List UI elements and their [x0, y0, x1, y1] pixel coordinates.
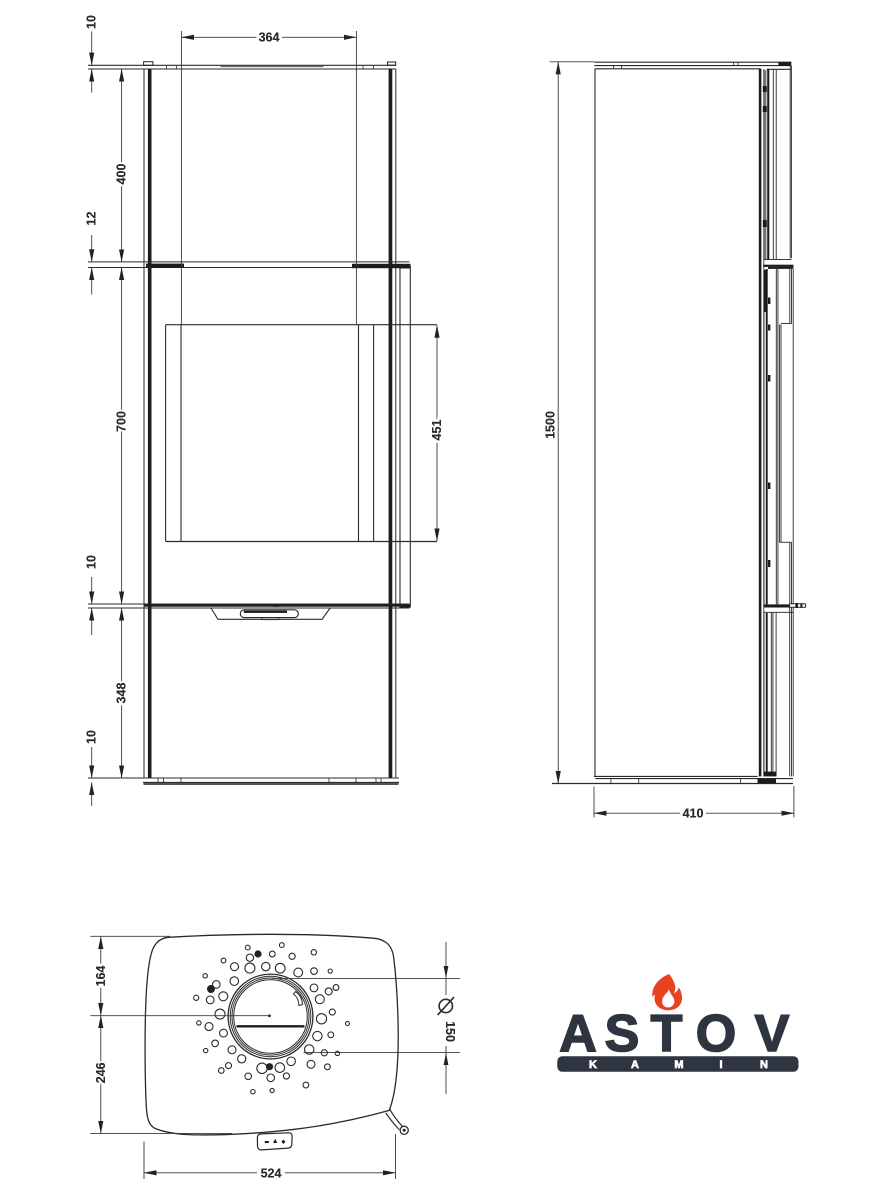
- svg-text:12: 12: [85, 212, 99, 226]
- svg-text:N: N: [760, 1059, 768, 1071]
- svg-text:K: K: [589, 1059, 597, 1071]
- svg-text:V: V: [755, 1005, 790, 1063]
- svg-text:1500: 1500: [543, 411, 557, 439]
- svg-text:164: 164: [94, 966, 108, 987]
- svg-text:364: 364: [259, 31, 280, 45]
- svg-text:700: 700: [114, 411, 128, 432]
- svg-text:246: 246: [94, 1062, 108, 1083]
- svg-text:150: 150: [443, 1021, 457, 1042]
- svg-text:M: M: [674, 1059, 683, 1071]
- svg-text:10: 10: [85, 555, 99, 569]
- svg-text:348: 348: [114, 683, 128, 704]
- svg-text:10: 10: [85, 15, 99, 29]
- svg-text:400: 400: [114, 164, 128, 185]
- svg-text:10: 10: [85, 730, 99, 744]
- svg-text:A: A: [559, 1005, 597, 1063]
- svg-text:S: S: [605, 1005, 640, 1063]
- svg-text:O: O: [696, 1005, 736, 1063]
- svg-text:I: I: [719, 1059, 722, 1071]
- svg-text:451: 451: [430, 420, 444, 441]
- svg-text:524: 524: [261, 1166, 282, 1180]
- svg-text:A: A: [631, 1059, 639, 1071]
- svg-text:410: 410: [683, 807, 704, 821]
- svg-text:T: T: [651, 1005, 683, 1063]
